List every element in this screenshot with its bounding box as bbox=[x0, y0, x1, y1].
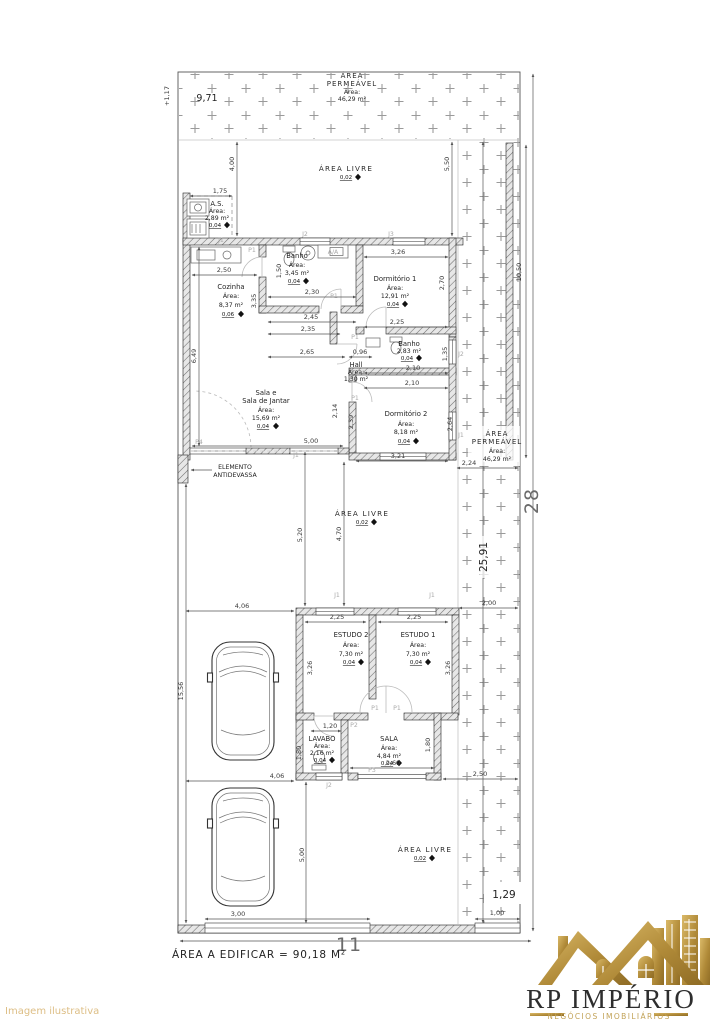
area-word: Área: bbox=[489, 446, 505, 455]
area-permeavel-line2: PERMEÁVEL bbox=[472, 437, 522, 446]
dim-label: 1,50 bbox=[275, 264, 283, 278]
dim-label: 4,06 bbox=[235, 602, 249, 610]
room-name: ESTUDO 2 bbox=[334, 631, 369, 639]
dim-label: 2,35 bbox=[301, 325, 315, 333]
room-name: SALA bbox=[380, 735, 398, 743]
dim-label: 25,91 bbox=[478, 542, 490, 572]
dim-label: 2,65 bbox=[300, 348, 314, 356]
dim-label: 4,06 bbox=[270, 772, 284, 780]
door-tag: P1 bbox=[248, 247, 256, 254]
dim-label: 3,35 bbox=[250, 294, 258, 308]
dim-label: 2,39 bbox=[347, 415, 355, 429]
area-permeavel-line1: ÁREA bbox=[341, 71, 364, 80]
room-name: Banho bbox=[286, 252, 308, 260]
area-livre-label: ÁREA LIVRE bbox=[335, 509, 389, 518]
area-word: Área: bbox=[289, 260, 305, 269]
area-word: Área: bbox=[258, 405, 274, 414]
window-tag: J1 bbox=[428, 592, 435, 599]
dim-label: 1,75 bbox=[213, 187, 227, 195]
door-tag: P3 bbox=[368, 767, 376, 774]
dim-label: 4,00 bbox=[228, 157, 236, 171]
car-top-view bbox=[208, 788, 279, 906]
dim-label: 2,10 bbox=[406, 364, 420, 372]
area-permeavel-line1: ÁREA bbox=[486, 429, 509, 438]
watermark-text: Imagem ilustrativa bbox=[5, 1006, 99, 1017]
room-area: 1,30 m² bbox=[344, 376, 369, 383]
dim-label: 2,10 bbox=[405, 379, 419, 387]
room-level: 0,04 bbox=[343, 660, 356, 666]
dim-label: 10,50 bbox=[515, 263, 523, 282]
dim-label: 5,50 bbox=[443, 157, 451, 171]
floor-plan-sheet: ÁREA PERMEÁVEL Área: 46,29 m² ÁREA PERME… bbox=[0, 0, 724, 1024]
dim-label: 15,56 bbox=[177, 682, 185, 701]
room-level: 0,04 bbox=[387, 302, 400, 308]
dim-label: 3,26 bbox=[306, 661, 314, 675]
area-livre-label: ÁREA LIVRE bbox=[319, 164, 373, 173]
dim-label: 2,70 bbox=[438, 276, 446, 290]
area-word: Área: bbox=[381, 743, 397, 752]
area-word: Área: bbox=[410, 640, 426, 649]
room-area: 7,30 m² bbox=[406, 651, 431, 658]
area-permeavel-value: 46,29 m² bbox=[338, 96, 367, 103]
dim-label: 2,14 bbox=[331, 404, 339, 418]
room-level: 0,04 bbox=[209, 223, 222, 229]
area-word: Área: bbox=[398, 419, 414, 428]
dim-label: 5,20 bbox=[296, 528, 304, 542]
area-word: Área: bbox=[387, 283, 403, 292]
window-tag: J2 bbox=[457, 351, 464, 358]
dim-label: 2,25 bbox=[390, 318, 404, 326]
door-tag: P1 bbox=[371, 705, 379, 712]
area-livre-label: ÁREA LIVRE bbox=[398, 845, 452, 854]
room-name: Sala de Jantar bbox=[242, 397, 290, 405]
room-level: 0,04 bbox=[401, 356, 414, 362]
dim-label: 1,80 bbox=[424, 738, 432, 752]
room-level: 0,04 bbox=[257, 424, 270, 430]
area-permeavel-line2: PERMEÁVEL bbox=[327, 79, 377, 88]
logo-houses-icon bbox=[538, 915, 710, 985]
area-word: Área: bbox=[223, 291, 239, 300]
dim-label: 2,30 bbox=[305, 288, 319, 296]
elemento-antidevassa-label: ELEMENTO ANTIDEVASSA bbox=[213, 464, 257, 479]
bath2-sink-icon bbox=[366, 338, 380, 347]
room-area: 3,45 m² bbox=[285, 270, 310, 277]
door-tag: P2 bbox=[350, 722, 358, 729]
room-area: 15,69 m² bbox=[252, 415, 281, 422]
door-tag: P1 bbox=[351, 395, 359, 402]
room-area: 12,91 m² bbox=[381, 293, 410, 300]
area-word: Área: bbox=[209, 206, 225, 215]
dim-label: 5,00 bbox=[304, 437, 318, 445]
room-area: 8,18 m² bbox=[394, 429, 419, 436]
dim-label: 5,00 bbox=[298, 848, 306, 862]
dim-label: 2,25 bbox=[330, 613, 344, 621]
elemento-line1: ELEMENTO bbox=[218, 464, 252, 471]
area-word: Área: bbox=[343, 640, 359, 649]
room-name: Dormitório 2 bbox=[385, 410, 428, 418]
dim-label: 2,24 bbox=[462, 459, 476, 467]
room-level: 0,04 bbox=[288, 279, 301, 285]
dim-label: 0,96 bbox=[353, 348, 367, 356]
dim-label: 2,45 bbox=[304, 313, 318, 321]
dim-label: 1,20 bbox=[323, 722, 337, 730]
window-tag: J2 bbox=[325, 782, 332, 789]
area-livre-level: 0,02 bbox=[414, 856, 426, 862]
brand-name: RP IMPÉRIO bbox=[526, 984, 696, 1014]
area-word: Área: bbox=[314, 741, 330, 750]
dim-label: 1,00 bbox=[490, 909, 504, 917]
window-tag: J3 bbox=[387, 231, 394, 238]
area-edificar-label: ÁREA A EDIFICAR = 90,18 M² bbox=[172, 948, 346, 961]
dim-label: 3,26 bbox=[391, 248, 405, 256]
dim-label: 2,50 bbox=[473, 770, 487, 778]
window-tag: J1 bbox=[333, 592, 340, 599]
dim-label: 9,71 bbox=[196, 93, 217, 104]
dim-label: 2,25 bbox=[407, 613, 421, 621]
room-level: 0,06 bbox=[222, 312, 235, 318]
dim-label: 1,80 bbox=[295, 746, 303, 760]
elemento-line2: ANTIDEVASSA bbox=[213, 472, 257, 479]
lot-depth-dim: 28 bbox=[521, 488, 543, 514]
room-name: Sala e bbox=[256, 389, 277, 397]
car-top-view bbox=[208, 642, 279, 760]
room-area: 2,89 m² bbox=[205, 215, 230, 222]
dim-label: +1,17 bbox=[163, 86, 171, 106]
dim-label: 3,00 bbox=[231, 910, 245, 918]
door-tag: P1 bbox=[393, 705, 401, 712]
dim-label: 6,49 bbox=[190, 349, 198, 363]
brand-logo: RP IMPÉRIO NEGÓCIOS IMOBILIÁRIOS bbox=[526, 915, 710, 1021]
window-tag: J1 bbox=[457, 432, 464, 439]
door-tag: P1 bbox=[330, 293, 338, 300]
room-area: 2,83 m² bbox=[397, 348, 422, 355]
door-tag: P4 bbox=[195, 439, 203, 446]
area-livre-level: 0,02 bbox=[340, 175, 352, 181]
room-name: Dormitório 1 bbox=[374, 275, 417, 283]
kitchen-sink-icon bbox=[191, 247, 241, 263]
dim-label: 1,35 bbox=[441, 347, 449, 361]
dim-label: 2,00 bbox=[482, 599, 496, 607]
area-livre-level: 0,02 bbox=[356, 520, 368, 526]
door-tag: P1 bbox=[351, 334, 359, 341]
room-name: ESTUDO 1 bbox=[401, 631, 436, 639]
room-area: 7,30 m² bbox=[339, 651, 364, 658]
window-tag: J1 bbox=[292, 452, 299, 459]
washer-icon bbox=[187, 199, 209, 216]
room-name: Cozinha bbox=[217, 283, 244, 291]
area-permeavel-value: 46,29 m² bbox=[483, 456, 512, 463]
room-level: 0,04 bbox=[398, 439, 411, 445]
dim-label: 2,69 bbox=[386, 759, 400, 767]
window-tag: J1 bbox=[217, 237, 224, 244]
dim-label: 4,70 bbox=[335, 527, 343, 541]
room-area: 8,37 m² bbox=[219, 302, 244, 309]
room-level: 0,04 bbox=[314, 758, 327, 764]
area-word: Área: bbox=[348, 367, 364, 376]
ac-tag: A/A bbox=[328, 249, 339, 256]
window-tag: J2 bbox=[301, 231, 308, 238]
room-name: A.S. bbox=[210, 200, 223, 208]
brand-tagline: NEGÓCIOS IMOBILIÁRIOS bbox=[547, 1012, 671, 1021]
dim-label: 2,50 bbox=[217, 266, 231, 274]
room-area: 2,16 m² bbox=[310, 750, 335, 757]
dim-label: 3,21 bbox=[391, 452, 405, 460]
dim-label: 3,26 bbox=[444, 661, 452, 675]
dim-label: 1,29 bbox=[492, 889, 515, 901]
dim-label: 2,64 bbox=[446, 417, 454, 431]
room-level: 0,04 bbox=[410, 660, 423, 666]
room-name: LAVABO bbox=[309, 735, 336, 743]
room-name: Hall bbox=[349, 361, 362, 369]
floor-plan-drawing: ÁREA PERMEÁVEL Área: 46,29 m² ÁREA PERME… bbox=[0, 0, 724, 1024]
area-word: Área: bbox=[344, 87, 360, 96]
room-name: Banho bbox=[398, 340, 420, 348]
